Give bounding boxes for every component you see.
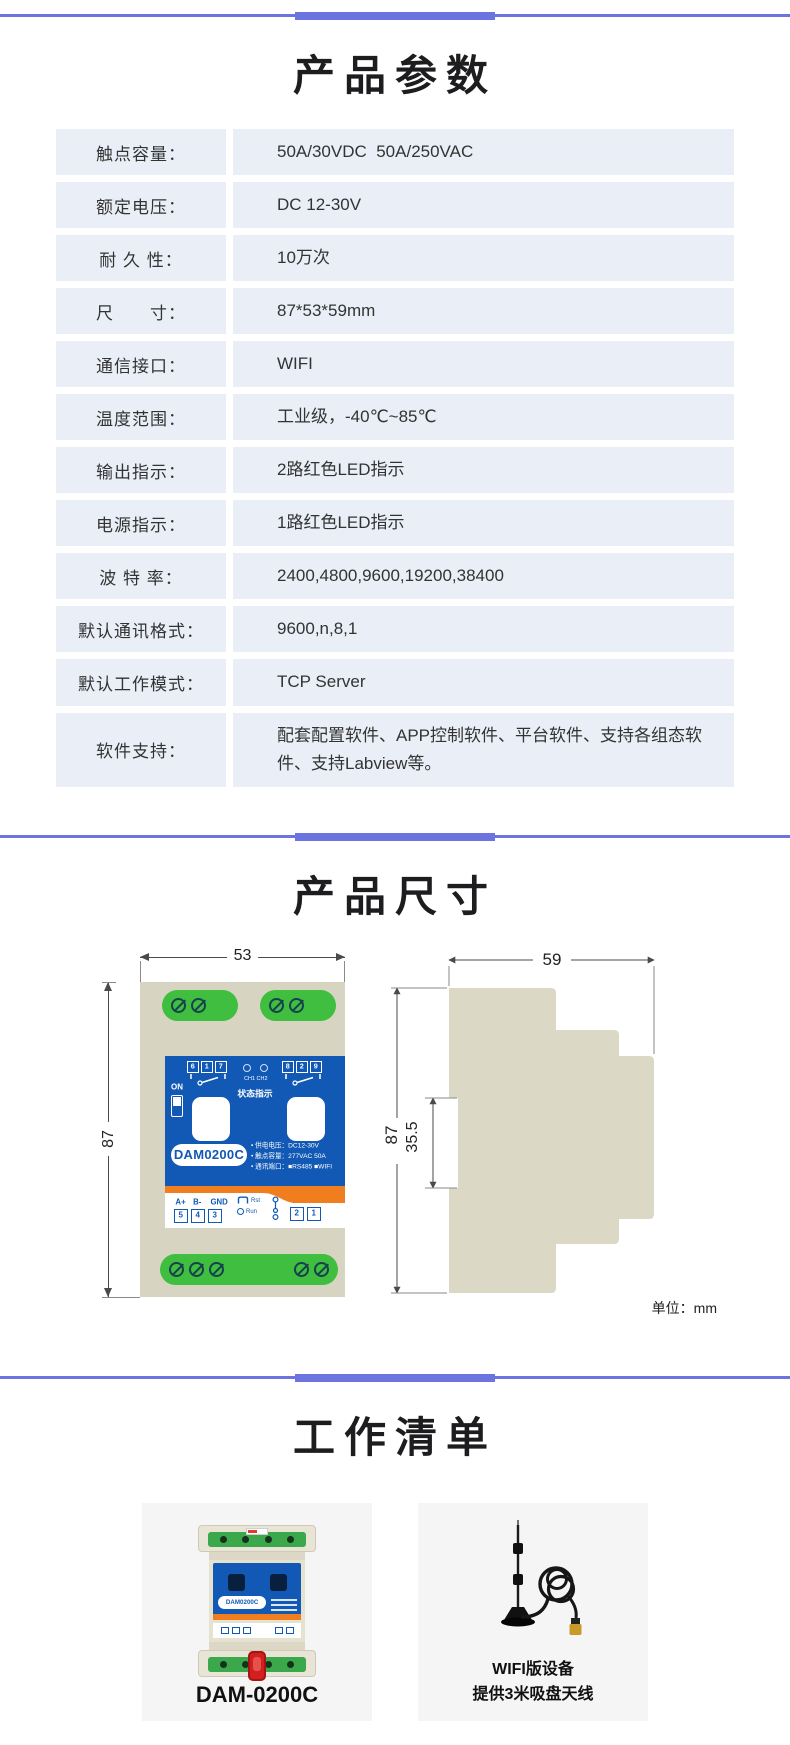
section-divider xyxy=(0,833,790,841)
screw-icon xyxy=(169,1262,184,1277)
screw-icon xyxy=(191,998,206,1013)
spec-row: 波 特 率：2400,4800,9600,19200,38400 xyxy=(56,553,734,599)
spec-value: TCP Server xyxy=(233,659,734,705)
spec-table: 触点容量：50A/30VDC 50A/250VAC 额定电压：DC 12-30V… xyxy=(56,129,734,787)
device-front-panel: ON 6 1 7 xyxy=(165,1056,345,1186)
terminal-block xyxy=(162,990,238,1021)
section-divider xyxy=(0,1374,790,1382)
screw-icon xyxy=(269,998,284,1013)
section-worklist: 工作清单 DAM0200C xyxy=(0,1374,790,1745)
divider-segment xyxy=(295,12,495,20)
spec-row: 温度范围：工业级，-40℃~85℃ xyxy=(56,394,734,440)
spec-label: 软件支持： xyxy=(56,713,226,787)
terminal-block-bottom xyxy=(160,1254,338,1285)
connector-neck xyxy=(571,1618,580,1624)
dim-width-front: 53 xyxy=(140,957,345,958)
spec-value: 10万次 xyxy=(233,235,734,281)
dim-height-front-label: 87 xyxy=(100,1122,118,1156)
spec-value: WIFI xyxy=(233,341,734,387)
dim-notch-label: 35.5 xyxy=(404,1121,421,1152)
model-badge: DAM0200C xyxy=(218,1596,266,1609)
channel-labels: CH1 CH2 xyxy=(244,1075,266,1081)
spec-row: 电源指示：1路红色LED指示 xyxy=(56,500,734,546)
side-profile-svg: 59 87 35.5 xyxy=(383,950,683,1302)
dimension-drawings: 53 87 O xyxy=(45,950,745,1322)
divider-segment xyxy=(295,1374,495,1382)
spec-label: 温度范围： xyxy=(56,394,226,440)
unit-note: 单位：mm xyxy=(652,1298,717,1318)
spec-value: 配套配置软件、APP控制软件、平台软件、支持各组态软件、支持Labview等。 xyxy=(233,713,734,787)
front-view-drawing: 53 87 O xyxy=(100,952,350,1304)
dim-height-front: 87 xyxy=(108,982,109,1297)
spec-label: 尺 寸： xyxy=(56,288,226,334)
antenna-illustration xyxy=(463,1519,603,1651)
spec-label: 默认工作模式： xyxy=(56,659,226,705)
relay2-terminals: 8 2 9 xyxy=(282,1061,326,1087)
spec-label: 波 特 率： xyxy=(56,553,226,599)
screw-icon xyxy=(314,1262,329,1277)
device-caption: DAM-0200C xyxy=(196,1682,318,1708)
spec-row: 通信接口：WIFI xyxy=(56,341,734,387)
panel-spec-lines: • 供电电压：DC12-30V • 触点容量：277VAC 50A • 通讯端口… xyxy=(251,1141,343,1173)
section-dimensions: 产品尺寸 53 87 xyxy=(0,833,790,1322)
dimensions-title: 产品尺寸 xyxy=(0,863,790,924)
screw-icon xyxy=(289,998,304,1013)
spec-label: 触点容量： xyxy=(56,129,226,175)
spec-value: 50A/30VDC 50A/250VAC xyxy=(233,129,734,175)
screw-icon xyxy=(209,1262,224,1277)
device-front-body: ON 6 1 7 xyxy=(140,982,345,1297)
led-indicator xyxy=(260,1064,268,1072)
worklist-item-antenna: WIFI版设备 提供3米吸盘天线 xyxy=(418,1503,648,1721)
spec-label: 耐 久 性： xyxy=(56,235,226,281)
dim-height-side-label: 87 xyxy=(383,1125,401,1144)
sma-connector xyxy=(570,1624,582,1635)
spec-value: 87*53*59mm xyxy=(233,288,734,334)
spec-row: 默认通讯格式：9600,n,8,1 xyxy=(56,606,734,652)
relay-switch-icon xyxy=(282,1074,324,1087)
housing-profile xyxy=(449,988,654,1293)
spec-label: 电源指示： xyxy=(56,500,226,546)
spec-row: 输出指示：2路红色LED指示 xyxy=(56,447,734,493)
model-badge: DAM0200C xyxy=(171,1144,247,1166)
switch-icon xyxy=(171,1095,183,1117)
spec-label: 默认通讯格式： xyxy=(56,606,226,652)
antenna-connector xyxy=(248,1651,266,1681)
screw-icon xyxy=(189,1262,204,1277)
dim-width-front-label: 53 xyxy=(227,947,259,965)
product-detail-page: 产品参数 触点容量：50A/30VDC 50A/250VAC 额定电压：DC 1… xyxy=(0,0,790,1745)
relay-button xyxy=(287,1097,325,1141)
spec-value: DC 12-30V xyxy=(233,182,734,228)
power-switch: ON xyxy=(168,1082,186,1117)
relay-window xyxy=(270,1574,287,1591)
spec-value: 9600,n,8,1 xyxy=(233,606,734,652)
device-photo: DAM0200C xyxy=(198,1525,316,1682)
label-sticker xyxy=(246,1528,268,1535)
screw-icon xyxy=(171,998,186,1013)
spec-value: 工业级，-40℃~85℃ xyxy=(233,394,734,440)
orange-stripe xyxy=(213,1614,301,1620)
run-led-icon xyxy=(237,1208,244,1215)
spec-row: 默认工作模式：TCP Server xyxy=(56,659,734,705)
parameters-title: 产品参数 xyxy=(0,42,790,103)
spec-row: 触点容量：50A/30VDC 50A/250VAC xyxy=(56,129,734,175)
orange-swoosh xyxy=(165,1186,345,1204)
spec-label: 输出指示： xyxy=(56,447,226,493)
screw-icon xyxy=(294,1262,309,1277)
spec-row: 尺 寸：87*53*59mm xyxy=(56,288,734,334)
device-panel: DAM0200C xyxy=(213,1563,301,1620)
spec-label: 通信接口： xyxy=(56,341,226,387)
led-indicator xyxy=(243,1064,251,1072)
side-view-drawing: 59 87 35.5 xyxy=(383,950,683,1302)
spec-row: 软件支持：配套配置软件、APP控制软件、平台软件、支持各组态软件、支持Labvi… xyxy=(56,713,734,787)
spec-row: 耐 久 性：10万次 xyxy=(56,235,734,281)
section-parameters: 产品参数 触点容量：50A/30VDC 50A/250VAC 额定电压：DC 1… xyxy=(0,12,790,787)
divider-segment xyxy=(295,833,495,841)
relay-button xyxy=(192,1097,230,1141)
on-label: ON xyxy=(170,1083,184,1092)
antenna-caption: WIFI版设备 提供3米吸盘天线 xyxy=(473,1658,594,1708)
relay1-terminals: 6 1 7 xyxy=(187,1061,231,1087)
spec-row: 额定电压：DC 12-30V xyxy=(56,182,734,228)
status-indicator-group: CH1 CH2 状态指示 xyxy=(235,1064,275,1100)
worklist-title: 工作清单 xyxy=(0,1404,790,1465)
worklist-item-device: DAM0200C xyxy=(142,1503,372,1721)
spec-label: 额定电压： xyxy=(56,182,226,228)
spec-value: 1路红色LED指示 xyxy=(233,500,734,546)
relay-switch-icon xyxy=(187,1074,229,1087)
dim-width-side-label: 59 xyxy=(543,950,562,969)
spec-value: 2400,4800,9600,19200,38400 xyxy=(233,553,734,599)
terminal-block xyxy=(260,990,336,1021)
spec-value: 2路红色LED指示 xyxy=(233,447,734,493)
worklist-cards: DAM0200C xyxy=(0,1503,790,1745)
relay-window xyxy=(228,1574,245,1591)
status-label: 状态指示 xyxy=(237,1086,272,1099)
section-divider xyxy=(0,12,790,20)
